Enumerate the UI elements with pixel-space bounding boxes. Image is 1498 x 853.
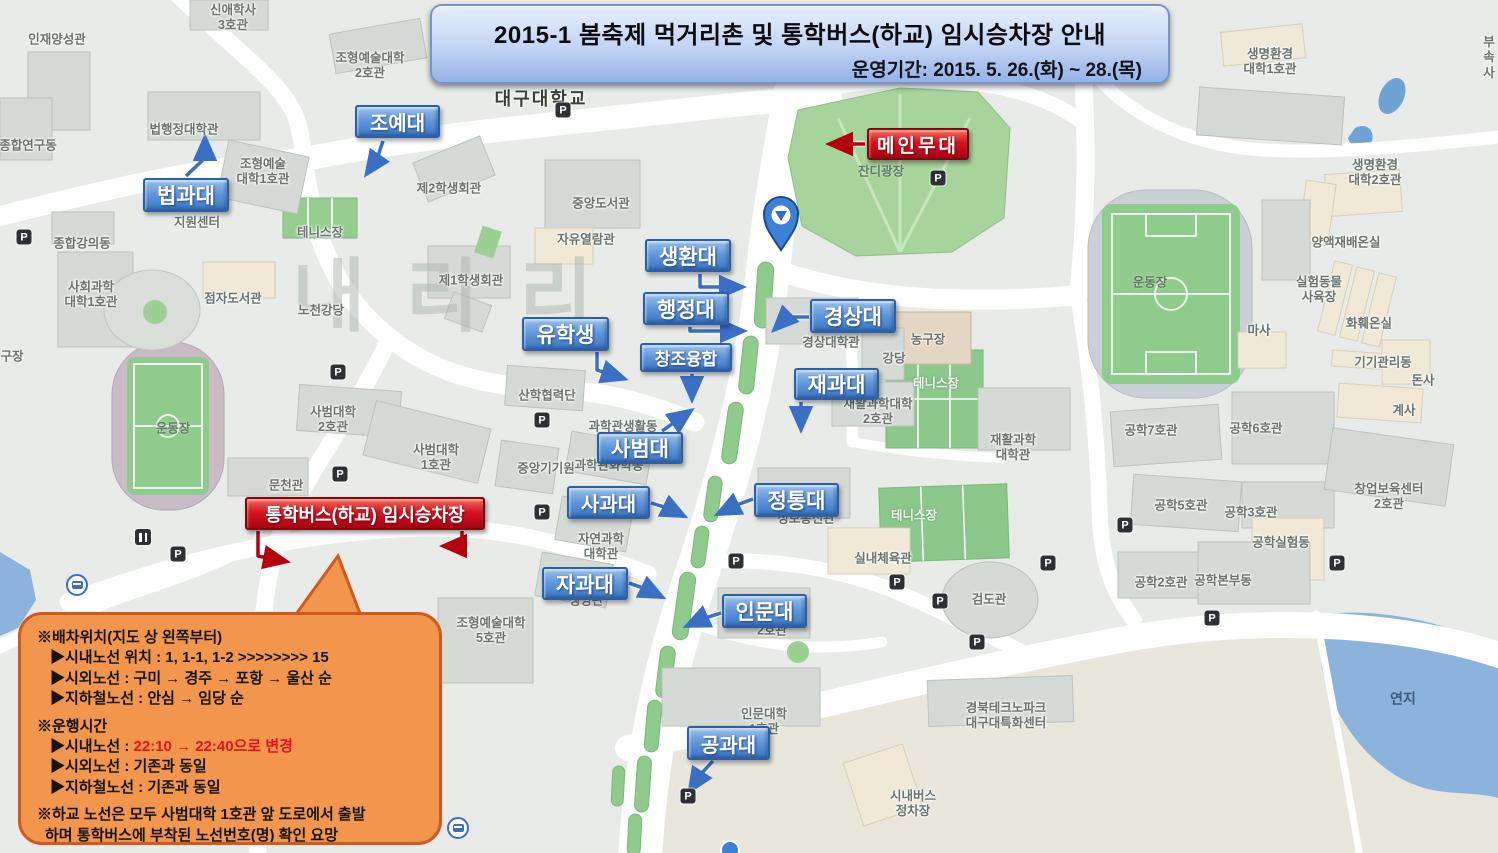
map-pin-partial <box>721 841 739 853</box>
notice-line: ▶시외노선 : 기존과 동일 <box>50 757 431 777</box>
parking-icon: P <box>890 575 905 590</box>
parking-icon: P <box>1205 611 1220 626</box>
building-label: 기기관리동 <box>1354 355 1412 370</box>
building-label: 사범대학 2호관 <box>310 405 356 436</box>
building-label: 창업보육센터 2호관 <box>1354 482 1423 513</box>
building-label: 생명환경 대학2호관 <box>1349 158 1402 189</box>
parking-icon: P <box>681 789 696 804</box>
bus-stop-icon <box>66 574 88 596</box>
college-label-정통대: 정통대 <box>754 483 839 517</box>
building-label: 양액재배온실 <box>1311 235 1380 250</box>
building-label: 종합연구동 <box>0 138 57 153</box>
parking-icon: P <box>933 594 948 609</box>
college-label-인문대: 인문대 <box>722 594 807 628</box>
stadium-east <box>1088 190 1252 398</box>
building-label: 검도관 <box>972 592 1007 607</box>
notice-departure-note: ※하교 노선은 모두 사범대학 1호관 앞 도로에서 출발하며 통학버스에 부착… <box>37 805 431 845</box>
parking-icon: P <box>970 635 985 650</box>
bus-stop-label: 통학버스(하교) 임시승차장 <box>245 497 485 530</box>
notice-dispatch-items: ▶시내노선 위치 : 1, 1-1, 1-2 >>>>>>>> 15▶시외노선 … <box>37 648 431 709</box>
building-label: 자연과학 대학관 <box>578 532 624 563</box>
building-label: 자유열람관 <box>557 232 615 247</box>
notice-dispatch-title: ※배차위치(지도 상 왼쪽부터) <box>37 628 431 648</box>
building-label: 사회과학 대학1호관 <box>65 280 118 311</box>
building-label: 조형예술 대학1호관 <box>237 157 290 188</box>
building-label: 공학3호관 <box>1225 505 1278 520</box>
building-label: 공학5호관 <box>1155 498 1208 513</box>
college-label-법과대: 법과대 <box>143 178 229 212</box>
building-label: 돈사 <box>1411 373 1434 388</box>
restaurant-icon <box>135 529 151 545</box>
building-label: 문천관 <box>269 478 304 493</box>
building-label: 제1학생회관 <box>439 273 503 288</box>
building-label: 재활과학 대학관 <box>990 433 1036 464</box>
building-label: 점자도서관 <box>204 291 262 306</box>
college-label-행정대: 행정대 <box>643 292 729 325</box>
parking-icon: P <box>331 365 346 380</box>
parking-icon: P <box>535 505 550 520</box>
parking-icon: P <box>1041 556 1056 571</box>
college-label-자과대: 자과대 <box>542 567 628 600</box>
building-label: 사범대학 1호관 <box>413 443 459 474</box>
building-label: 화훼온실 <box>1346 316 1392 331</box>
festival-map-poster: 내리리신애학사 3호관인재양성관조형예술대학 2호관대구대학교법행정대학관종합연… <box>0 0 1498 853</box>
notice-line: ※하교 노선은 모두 사범대학 1호관 앞 도로에서 출발 <box>37 805 431 825</box>
notice-line: ▶시외노선 : 구미 → 경주 → 포항 → 울산 순 <box>50 669 431 689</box>
parking-icon: P <box>171 547 186 562</box>
notice-hours-title: ※운행시간 <box>37 717 431 737</box>
parking-icon: P <box>729 554 744 569</box>
building-label: 실험동물 사육장 <box>1296 275 1342 306</box>
building-label: 중앙기기원 <box>517 461 575 476</box>
notice-city-route-line: ▶시내노선 : 22:10 → 22:40으로 변경 <box>50 737 431 757</box>
building-label: 공학본부동 <box>1194 573 1252 588</box>
college-label-재과대: 재과대 <box>794 368 879 400</box>
notice-line: 하며 통학버스에 부착된 노선번호(명) 확인 요망 <box>37 826 431 845</box>
building-label: 구장 <box>0 349 23 364</box>
building-label: 노천강당 <box>298 303 344 318</box>
college-label-창조융합: 창조융합 <box>640 343 732 372</box>
main-stage-label: 메인무대 <box>867 128 969 160</box>
building-label: 대구대학교 <box>495 89 588 111</box>
building-label: 지원센터 <box>174 215 220 230</box>
building-label: 산학협력단 <box>518 388 576 403</box>
notice-hours-items: ▶시내노선 : 22:10 → 22:40으로 변경 ▶시외노선 : 기존과 동… <box>37 737 431 798</box>
building-label: 테니스장 <box>297 225 343 240</box>
notice-line: ▶지하철노선 : 안심 → 임당 순 <box>50 689 431 709</box>
notice-line: ▶시내노선 위치 : 1, 1-1, 1-2 >>>>>>>> 15 <box>50 648 431 668</box>
notice-city-route-change: 22:10 → 22:40으로 변경 <box>134 738 293 755</box>
building-label: 법행정대학관 <box>149 122 218 137</box>
building-label: 공학6호관 <box>1230 421 1283 436</box>
title-banner: 2015-1 봄축제 먹거리촌 및 통학버스(하교) 임시승차장 안내 운영기간… <box>430 4 1170 84</box>
building-label: 연지 <box>1390 690 1416 707</box>
parking-icon: P <box>1118 518 1133 533</box>
building-label: 경북테크노파크 대구대특화센터 <box>966 701 1047 732</box>
building-label: 인재양성관 <box>28 32 86 47</box>
building-label: 조형예술대학 2호관 <box>335 51 404 82</box>
notice-bubble: ※배차위치(지도 상 왼쪽부터) ▶시내노선 위치 : 1, 1-1, 1-2 … <box>18 612 442 845</box>
building-label: 종합강의동 <box>53 236 111 251</box>
college-label-조예대: 조예대 <box>355 105 440 138</box>
building-label: 강당 <box>882 351 905 366</box>
building-label: 조형예술대학 5호관 <box>456 616 525 647</box>
building-label: 계사 <box>1392 403 1415 418</box>
poster-title: 2015-1 봄축제 먹거리촌 및 통학버스(하교) 임시승차장 안내 <box>432 15 1168 50</box>
bus-stop-icon <box>447 817 469 839</box>
parking-icon: P <box>556 103 571 118</box>
college-label-경상대: 경상대 <box>810 299 896 333</box>
notice-line: ▶지하철노선 : 기존과 동일 <box>50 778 431 798</box>
parking-icon: P <box>17 230 32 245</box>
building-label: 시내버스 정차장 <box>890 789 936 820</box>
building-label: 제2학생회관 <box>417 181 481 196</box>
building-label: 신애학사 3호관 <box>210 3 256 34</box>
college-label-사범대: 사범대 <box>597 432 683 464</box>
building-label: 잔디광장 <box>858 164 904 179</box>
building-label: 농구장 <box>911 332 946 347</box>
college-label-사과대: 사과대 <box>567 486 650 519</box>
building-label: 생명환경 대학1호관 <box>1244 47 1297 78</box>
parking-icon: P <box>931 171 946 186</box>
building-label: 실내체육관 <box>854 551 912 566</box>
college-label-생환대: 생환대 <box>645 239 731 272</box>
green-patch <box>787 641 809 663</box>
building-label: 테니스장 <box>913 376 959 391</box>
poster-subtitle: 운영기간: 2015. 5. 26.(화) ~ 28.(목) <box>432 55 1168 82</box>
building-label: 공학2호관 <box>1135 575 1188 590</box>
building-label: 공학실험동 <box>1252 535 1310 550</box>
parking-icon: P <box>535 413 550 428</box>
college-label-유학생: 유학생 <box>522 317 609 351</box>
building-label: 마사 <box>1247 323 1270 338</box>
parking-icon: P <box>1330 556 1345 571</box>
parking-icon: P <box>333 467 348 482</box>
building-label: 부속 사 <box>1483 35 1495 81</box>
building-label: 운동장 <box>1133 275 1168 290</box>
notice-city-route-prefix: ▶시내노선 : <box>50 738 134 755</box>
building-label: 재활과학대학 2호관 <box>843 397 912 428</box>
building-label: 경상대학관 <box>802 335 860 350</box>
building-label: 공학7호관 <box>1125 423 1178 438</box>
building-label: 테니스장 <box>891 508 937 523</box>
building-label: 운동장 <box>156 421 191 436</box>
building-label: 중앙도서관 <box>572 196 630 211</box>
college-label-공과대: 공과대 <box>687 726 770 760</box>
amphitheater-stage <box>143 300 167 324</box>
